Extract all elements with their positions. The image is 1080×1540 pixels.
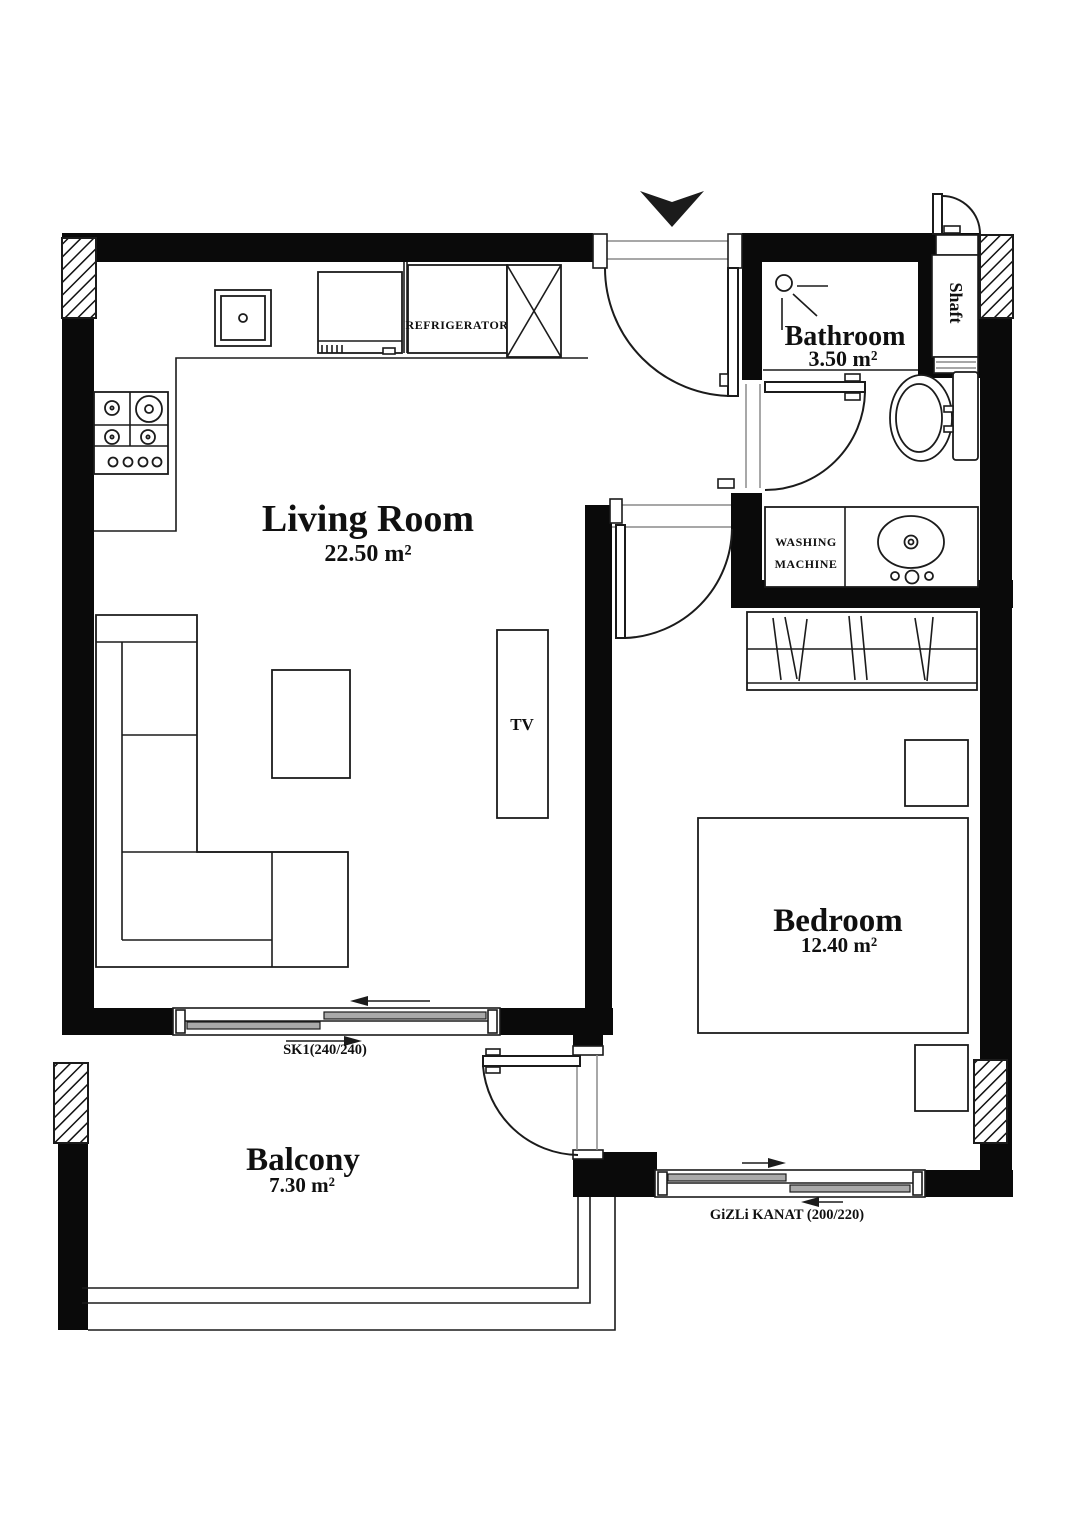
toilet <box>890 372 978 461</box>
balcony-door-leaf <box>483 1056 580 1066</box>
wall-left <box>62 238 94 1035</box>
shaft-bottom-sill <box>934 357 978 373</box>
bathroom-door <box>746 374 865 490</box>
sofa-outline <box>96 615 348 967</box>
kitchen: REFRIGERATOR <box>94 262 561 474</box>
shaft: Shaft <box>932 194 980 373</box>
stove-knob <box>109 458 118 467</box>
entrance-arrow-icon <box>640 191 704 227</box>
balcony-railing-line <box>82 1197 578 1288</box>
window-gizli-pane-left <box>668 1174 786 1181</box>
balcony-railing <box>82 1197 615 1330</box>
window-gizli-jamb <box>913 1172 922 1195</box>
bedroom-door-jamb-left <box>610 499 622 523</box>
entrance-door-jamb-left <box>593 234 607 268</box>
bathroom-sink-tap-dot <box>891 572 899 580</box>
column-hatch-top-right <box>980 235 1013 318</box>
balcony-railing-line <box>88 1197 615 1330</box>
entrance-door-leaf <box>728 268 738 396</box>
bedroom-door-swing-arc <box>625 529 732 638</box>
stove-knob <box>124 458 133 467</box>
wall-middle-vertical <box>585 505 612 1033</box>
washing-machine-and-sink: WASHING MACHINE <box>765 507 978 587</box>
wall-hall-bathroom <box>742 262 762 380</box>
bathroom-sink-drain-dot <box>909 540 914 545</box>
balcony-door-handle <box>486 1067 500 1073</box>
toilet-tank <box>953 372 978 460</box>
bathroom-door-leaf <box>765 382 865 392</box>
refrigerator-label: REFRIGERATOR <box>406 318 509 332</box>
wall-right <box>980 235 1012 1197</box>
balcony-railing-line <box>82 1197 590 1303</box>
bedroom-area: 12.40 m² <box>801 933 877 957</box>
window-gizli-pane-right <box>790 1185 910 1192</box>
wall-top-left <box>62 233 593 262</box>
window-sk1-slide-arrowhead <box>350 996 368 1006</box>
balcony-area: 7.30 m² <box>269 1173 335 1197</box>
window-sk1-jamb <box>488 1010 497 1033</box>
entrance-door-handle <box>720 374 728 386</box>
balcony-door <box>483 1046 603 1159</box>
stove-knob <box>153 458 162 467</box>
window-gizli-slide-arrowhead <box>801 1197 819 1207</box>
entrance-door-jamb-right <box>728 234 742 268</box>
toilet-hinge <box>944 426 953 432</box>
bathroom-sink-tap-dot <box>906 571 919 584</box>
wall-bedroom-bottom-right <box>925 1170 1013 1197</box>
nightstand-bottom <box>915 1045 968 1111</box>
window-gizli-jamb <box>658 1172 667 1195</box>
wall-balcony-left <box>58 1143 88 1330</box>
bedroom-door-jamb-right <box>718 479 734 488</box>
shaft-door-leaf <box>933 194 942 234</box>
bathroom-door-jamb <box>845 393 860 400</box>
shaft-top-sill <box>936 235 978 255</box>
floor-plan-page: Shaft <box>0 0 1080 1540</box>
toilet-bowl-inner <box>896 384 942 452</box>
column-hatch-right-middle <box>974 1060 1007 1143</box>
balcony-door-handle <box>486 1049 500 1055</box>
living-room-name: Living Room <box>262 498 474 540</box>
refrigerator <box>408 265 507 353</box>
dishwasher-handle <box>383 348 395 354</box>
entrance-door-swing-arc <box>605 268 733 396</box>
washing-machine-label: WASHING <box>775 535 837 549</box>
window-sk1-jamb <box>176 1010 185 1033</box>
tv-label: TV <box>510 715 534 734</box>
window-gizli-label: GiZLi KANAT (200/220) <box>710 1207 864 1223</box>
bedroom-furniture <box>698 612 977 1111</box>
shower-arm-line <box>793 294 817 316</box>
wall-bedroom-bottom-left <box>613 1170 655 1197</box>
bathroom-sink-tap-dot <box>925 572 933 580</box>
shower-head <box>776 275 792 291</box>
column-hatch-balcony-left <box>54 1063 88 1143</box>
stove-burner-dot <box>145 405 153 413</box>
window-sk1-pane-right <box>324 1012 486 1019</box>
wardrobe <box>747 612 977 690</box>
window-gizli-kanat: GiZLi KANAT (200/220) <box>655 1158 925 1223</box>
living-room-area: 22.50 m² <box>324 541 411 567</box>
bathroom-area: 3.50 m² <box>809 346 878 371</box>
stove-burner-dot <box>110 406 113 409</box>
coffee-table <box>272 670 350 778</box>
stove-burner-dot <box>146 435 149 438</box>
shaft-label: Shaft <box>946 282 966 323</box>
column-hatch-top-left <box>62 238 96 318</box>
living-room-furniture: TV <box>96 615 548 967</box>
wall-top-right <box>742 233 918 262</box>
shaft-door-jamb <box>944 226 960 233</box>
stove-burner-dot <box>110 435 113 438</box>
wall-livingroom-bottom-right <box>500 1008 613 1035</box>
washing-machine-label: MACHINE <box>775 557 838 571</box>
bathroom-door-jamb <box>845 374 860 381</box>
window-sk1-pane-left <box>187 1022 320 1029</box>
bedroom-door <box>610 479 734 638</box>
bathroom-door-swing-arc <box>765 392 865 490</box>
kitchen-sink-drain <box>239 314 247 322</box>
nightstand-top <box>905 740 968 806</box>
window-sk1: SK1(240/240) <box>173 996 500 1058</box>
toilet-hinge <box>944 406 953 412</box>
stove <box>94 392 168 474</box>
stove-knob <box>139 458 148 467</box>
balcony-door-swing-arc <box>483 1066 578 1155</box>
floor-plan-drawing: Shaft <box>0 0 1080 1540</box>
bedroom-door-leaf <box>616 525 625 638</box>
wall-livingroom-bottom-left <box>94 1008 173 1035</box>
balcony-door-jamb-top <box>573 1046 603 1055</box>
window-gizli-slide-arrowhead <box>768 1158 786 1168</box>
window-sk1-label: SK1(240/240) <box>283 1042 367 1058</box>
entrance <box>593 191 742 396</box>
